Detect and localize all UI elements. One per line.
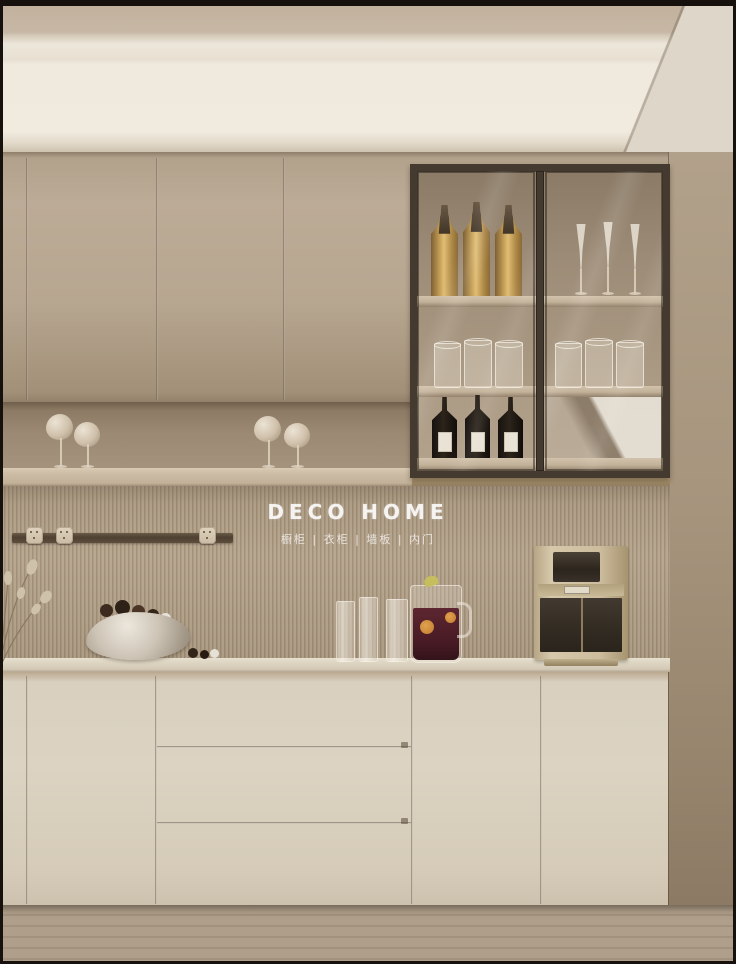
power-socket [26,527,43,544]
drawer-seam [157,822,411,824]
dispenser-display [564,586,590,594]
glass-foot [262,465,275,468]
dried-plant [0,545,64,665]
base-door-seam [411,676,413,904]
watermark: DECO HOME 橱柜 | 衣柜 | 墙板 | 内门 [246,500,470,547]
glass-stem [87,444,89,467]
glass-stem [268,440,270,466]
dispenser-base [544,659,618,666]
sangria-pitcher [410,585,462,663]
right-side-panel [668,152,736,905]
tall-glass [336,601,355,662]
watermark-brand: DECO HOME [246,500,470,524]
cabinet-mullion [536,171,544,471]
cotton-puff-glass [46,414,73,440]
ceiling-corner-diagonal [560,6,736,152]
base-door-seam [540,676,542,904]
upper-door-seam [26,158,28,400]
power-socket [56,527,73,544]
dispenser-front-doors [540,598,622,652]
glass-stem [60,438,62,466]
glass-foot [81,465,94,468]
upper-door-seam [156,158,158,400]
glass-stem [297,445,299,467]
dispenser-control-panel [538,584,624,596]
base-door-seam [26,676,28,904]
tall-glass [386,599,408,662]
chocolate [200,650,209,659]
watermark-tagline: 橱柜 | 衣柜 | 墙板 | 内门 [246,531,470,547]
dispenser-door-divider [581,598,583,652]
drawer-pull-notch [401,818,408,824]
pitcher-handle [457,602,472,638]
cotton-puff-glass [254,416,281,442]
drawer-seam [157,746,411,748]
white-truffle [210,649,219,658]
tall-glass [359,597,378,662]
photo-edge-top [0,0,736,6]
water-dispenser [534,546,628,660]
base-cabinet-band [0,672,668,905]
wood-floor [0,905,736,964]
glass-door-right [545,171,663,471]
power-socket [199,527,216,544]
chocolate [188,648,198,658]
base-door-seam [155,676,157,904]
photo-edge-left [0,0,3,964]
glass-foot [291,465,304,468]
drawer-pull-notch [401,742,408,748]
shelf-board [0,468,412,486]
orange-slice [445,612,456,623]
dispenser-bay [553,552,600,582]
interior-photo: DECO HOME 橱柜 | 衣柜 | 墙板 | 内门 [0,0,736,964]
upper-door-seam [283,158,285,400]
glass-display-cabinet [410,164,670,478]
orange-slice [420,620,434,634]
glass-door-left [417,171,535,471]
glass-foot [54,465,67,468]
